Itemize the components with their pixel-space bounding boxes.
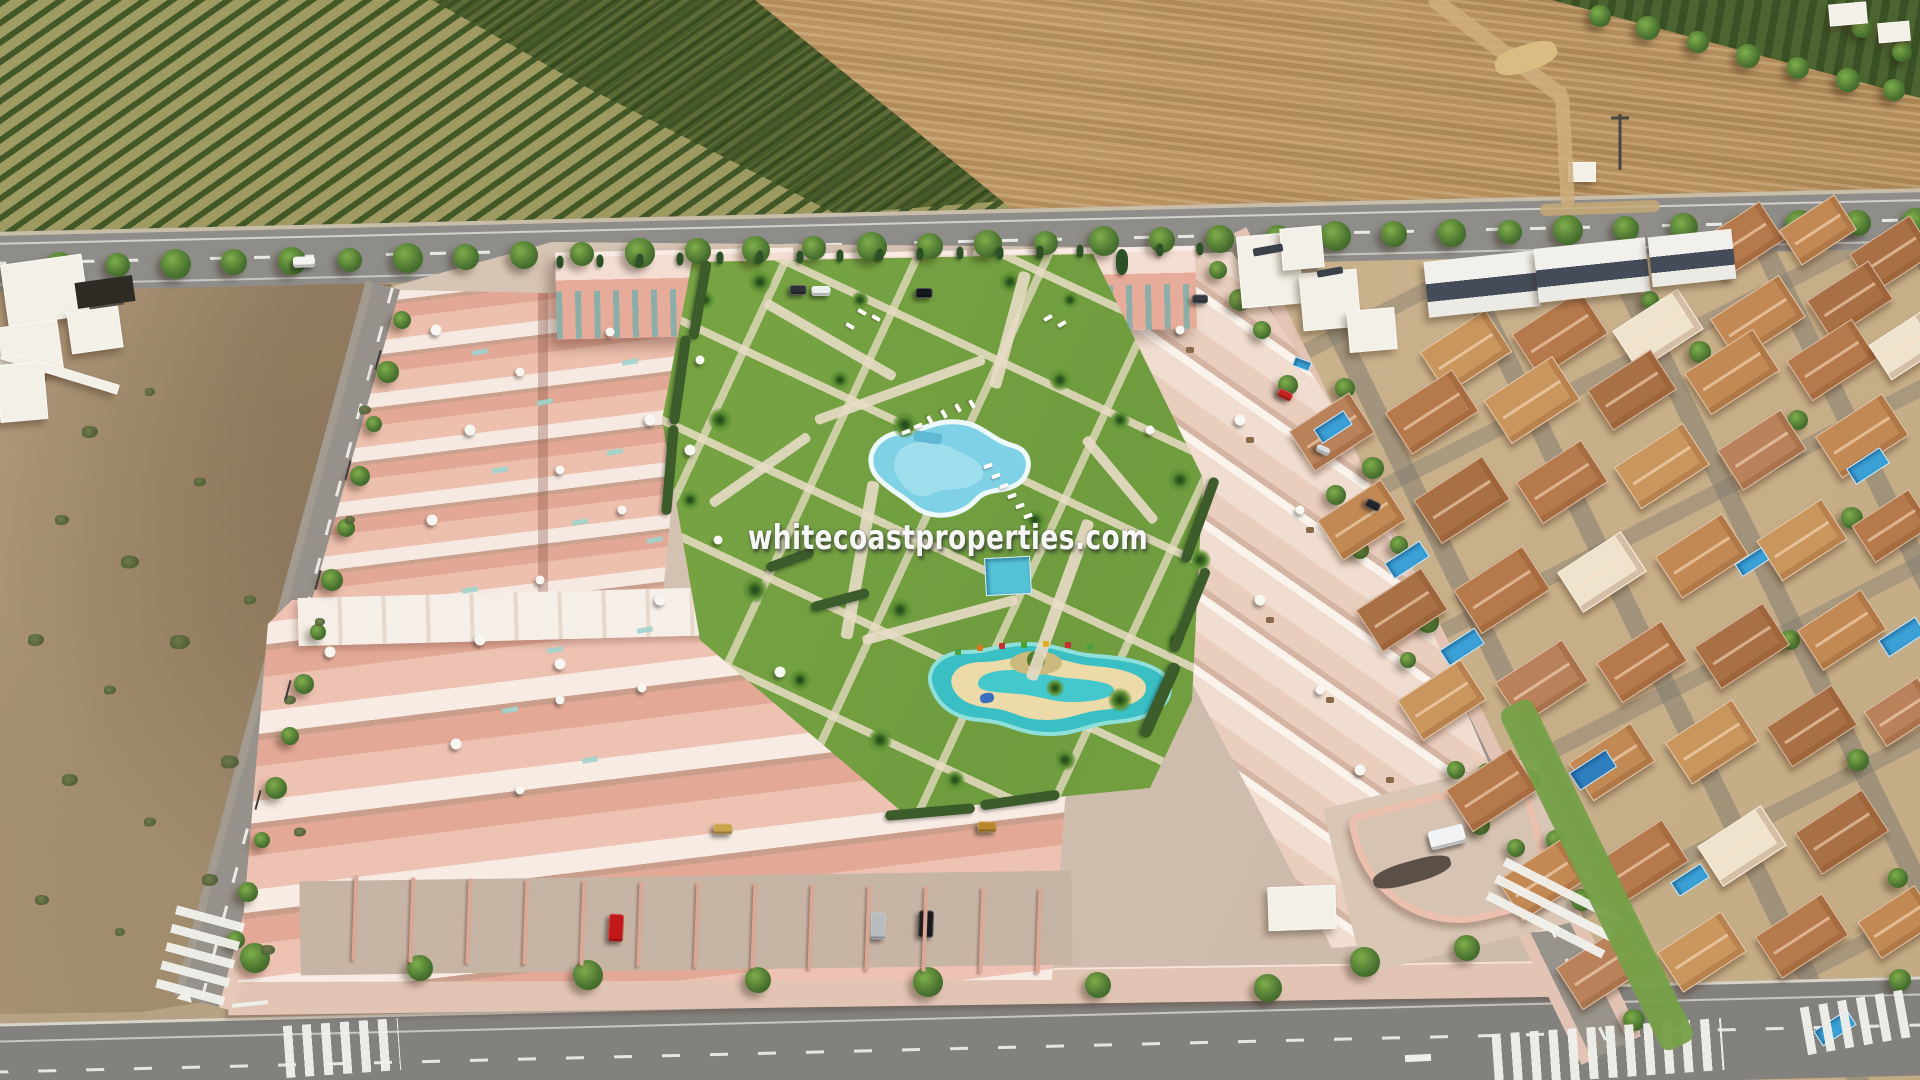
palm-tree xyxy=(1168,468,1192,492)
cypress-hedge xyxy=(837,250,844,263)
parasol xyxy=(325,647,336,658)
driveway-wall xyxy=(694,882,701,967)
parasol xyxy=(1355,765,1366,776)
south-sidewalk-tree xyxy=(573,960,603,990)
villa-roof xyxy=(1756,499,1848,582)
parasol xyxy=(685,445,696,456)
corner-tree xyxy=(1892,42,1912,62)
hedge xyxy=(1169,566,1212,653)
hedge xyxy=(669,335,691,426)
driveway-wall xyxy=(523,879,530,964)
palm-tree xyxy=(830,370,850,390)
west-street-tree xyxy=(366,416,382,432)
west-street-tree xyxy=(265,777,287,799)
east-street-tree xyxy=(1400,652,1416,668)
scrub-bush xyxy=(145,388,155,396)
roof-terrace-accent xyxy=(572,518,589,526)
sun-lounger xyxy=(968,399,976,409)
terrace-furniture xyxy=(1186,347,1194,353)
street-tree xyxy=(510,241,538,269)
street-tree xyxy=(161,249,191,279)
parasol xyxy=(1146,426,1155,435)
palm-tree xyxy=(1049,369,1071,391)
cypress-hedge xyxy=(1157,244,1164,257)
east-street-tree xyxy=(1447,761,1465,779)
driveway-wall xyxy=(979,887,986,972)
roof-terrace-accent xyxy=(647,536,664,544)
private-pool xyxy=(1292,356,1312,372)
villa-roof xyxy=(1397,659,1487,741)
playground-fence xyxy=(955,649,961,655)
driveway-wall xyxy=(466,878,473,963)
east-street-tree xyxy=(1209,261,1227,279)
scrub-bush xyxy=(359,406,371,415)
villa-roof xyxy=(1665,699,1759,785)
street-tree xyxy=(453,244,479,270)
street-tree xyxy=(1438,219,1466,247)
palm-tree xyxy=(851,291,869,309)
street-tree xyxy=(1321,221,1351,251)
sun-lounger xyxy=(857,308,867,316)
driveway-wall xyxy=(352,875,359,960)
parasol xyxy=(1296,506,1305,515)
sun-lounger xyxy=(940,409,948,419)
parasol xyxy=(431,325,442,336)
hedge xyxy=(885,803,976,821)
driveway-wall xyxy=(637,881,644,966)
villa-roof xyxy=(1612,289,1704,372)
scrub-bush xyxy=(82,426,98,438)
sun-lounger xyxy=(954,403,962,413)
street-tree xyxy=(106,253,130,277)
lamp-post xyxy=(1619,114,1622,170)
playground-fence xyxy=(1087,644,1093,650)
white-building xyxy=(1877,21,1911,44)
palm-tree xyxy=(789,669,811,691)
cypress-hedge xyxy=(1037,246,1044,259)
villa-roof xyxy=(1694,603,1790,690)
villa-roof xyxy=(1864,677,1920,747)
corner-tree xyxy=(1636,16,1660,40)
terrace-furniture xyxy=(1326,697,1334,703)
parasol xyxy=(1235,415,1246,426)
villa-roof xyxy=(1786,319,1878,402)
villa-roof xyxy=(1483,356,1580,444)
playground-fence xyxy=(1043,641,1049,647)
villa-roof xyxy=(1852,489,1920,563)
car xyxy=(916,288,933,298)
scrub-bush xyxy=(261,945,275,955)
crosswalk xyxy=(1800,989,1917,1055)
scrub-bush xyxy=(55,515,69,525)
cypress-hedge xyxy=(797,251,804,264)
palm-tree xyxy=(888,598,912,622)
garden-path xyxy=(1081,435,1159,526)
villa-roof xyxy=(1869,312,1920,381)
play-equipment xyxy=(979,692,995,704)
playground-fence xyxy=(977,645,983,651)
street-tree xyxy=(1089,226,1119,256)
palm-tree xyxy=(680,490,700,510)
roof-terrace-accent xyxy=(582,756,599,764)
scrub-bush xyxy=(104,686,116,695)
terrace-furniture xyxy=(1306,527,1314,533)
parasol xyxy=(427,515,438,526)
playground-fence xyxy=(1065,642,1071,648)
parasol xyxy=(775,667,786,678)
palm-tree xyxy=(868,728,892,752)
scrub-bush xyxy=(244,596,256,605)
street-tree xyxy=(1206,225,1234,253)
garden-path xyxy=(708,431,812,508)
parasol xyxy=(714,536,723,545)
cypress-hedge xyxy=(1116,249,1128,275)
row-townhouse xyxy=(1533,237,1650,302)
parasol xyxy=(555,659,566,670)
playground-fence xyxy=(999,643,1005,649)
villa-roof xyxy=(1587,349,1677,431)
south-sidewalk-tree xyxy=(1350,947,1380,977)
sun-lounger xyxy=(983,463,993,470)
aerial-photo: whitecoastproperties.com xyxy=(0,0,1920,1080)
sun-lounger xyxy=(926,415,934,425)
field-track xyxy=(1540,200,1660,216)
villa-roof xyxy=(1655,513,1749,599)
cypress-hedge xyxy=(677,253,684,266)
villa-roof xyxy=(1413,456,1510,544)
villa-roof xyxy=(1614,423,1710,510)
palm-tree xyxy=(748,270,772,294)
sun-lounger xyxy=(1057,320,1067,328)
parasol xyxy=(696,356,705,365)
street-tree xyxy=(393,243,423,273)
cypress-hedge xyxy=(557,256,564,269)
villa-roof xyxy=(1356,568,1449,652)
corner-tree xyxy=(1687,31,1709,53)
sun-lounger xyxy=(991,473,1001,480)
road-marking xyxy=(1405,1054,1431,1062)
garden-path xyxy=(763,298,898,382)
parasol xyxy=(618,506,627,515)
sun-lounger xyxy=(1043,314,1053,322)
palm-tree xyxy=(1108,688,1132,712)
cypress-hedge xyxy=(1077,245,1084,258)
roof-terrace-accent xyxy=(547,646,564,654)
parasol xyxy=(516,368,525,377)
car xyxy=(978,822,997,833)
roof-terrace-accent xyxy=(492,466,509,474)
row-townhouse xyxy=(1423,250,1540,317)
parasol xyxy=(638,684,647,693)
corner-tree xyxy=(1589,5,1611,27)
villa-roof xyxy=(1516,440,1609,524)
white-building xyxy=(1279,225,1325,271)
driveway-wall xyxy=(409,877,416,962)
parasol xyxy=(645,415,656,426)
palm-tree xyxy=(708,408,732,432)
palm-tree xyxy=(1046,679,1064,697)
parasol xyxy=(536,576,545,585)
cypress-hedge xyxy=(917,248,924,261)
roof-terrace-accent xyxy=(537,398,554,406)
white-building xyxy=(1828,1,1868,26)
villa-roof xyxy=(1596,621,1688,704)
private-pool xyxy=(984,556,1032,596)
scrub-bush xyxy=(144,818,156,827)
roof-terrace-accent xyxy=(502,706,519,714)
parasol xyxy=(516,786,525,795)
terrace-furniture xyxy=(1246,437,1254,443)
street-tree xyxy=(1498,220,1522,244)
row-townhouse xyxy=(1648,229,1737,288)
west-street-tree xyxy=(350,466,370,486)
car xyxy=(1427,823,1467,850)
cypress-hedge xyxy=(877,249,884,262)
west-street-tree xyxy=(281,727,299,745)
scrub-bush xyxy=(121,556,139,569)
villa-roof xyxy=(1795,789,1889,875)
garden-path xyxy=(840,480,880,640)
corner-tree xyxy=(1883,79,1905,101)
driveway-wall xyxy=(580,880,587,965)
terrace-furniture xyxy=(1386,777,1394,783)
parasol xyxy=(475,635,486,646)
street-tree xyxy=(570,242,594,266)
palm-tree xyxy=(1054,749,1076,771)
south-sidewalk-tree xyxy=(913,967,943,997)
parasol xyxy=(1316,686,1325,695)
neighborhood-tree xyxy=(1847,749,1869,771)
roof-terrace-accent xyxy=(462,586,479,594)
neighborhood-tree xyxy=(1888,868,1908,888)
neighborhood-tree xyxy=(1362,457,1384,479)
villa-roof xyxy=(1557,531,1647,613)
field-track xyxy=(1555,92,1575,208)
roof-terrace-accent xyxy=(472,348,489,356)
corner-tree xyxy=(1736,44,1760,68)
south-sidewalk-tree xyxy=(1085,972,1111,998)
neighborhood-tree xyxy=(1889,969,1911,991)
south-sidewalk-tree xyxy=(1454,935,1480,961)
east-street-tree xyxy=(1326,485,1346,505)
hedge xyxy=(810,587,871,612)
car xyxy=(293,256,315,268)
lamp-post xyxy=(1611,117,1629,120)
garden-path xyxy=(861,594,1018,645)
white-building xyxy=(66,306,123,355)
west-street-tree xyxy=(393,311,411,329)
street-tree xyxy=(338,248,362,272)
roof-terrace-accent xyxy=(637,626,654,634)
west-street-tree xyxy=(294,674,314,694)
sun-lounger xyxy=(1015,503,1025,510)
parasol xyxy=(451,739,462,750)
crosswalk xyxy=(283,1018,401,1078)
private-pool xyxy=(1878,617,1920,658)
driveway-wall xyxy=(751,883,758,968)
car xyxy=(1192,295,1208,304)
driveway-wall xyxy=(808,884,815,969)
sun-lounger xyxy=(999,483,1009,490)
neighborhood-tree xyxy=(1507,839,1525,857)
villa-roof xyxy=(1453,546,1550,634)
cypress-hedge xyxy=(997,247,1004,260)
parasol xyxy=(465,425,476,436)
car xyxy=(790,285,807,295)
parasol xyxy=(606,328,615,337)
west-street-tree xyxy=(310,624,326,640)
white-building xyxy=(1267,885,1336,931)
white-building xyxy=(0,361,48,423)
west-street-tree xyxy=(238,882,258,902)
scrub-bush xyxy=(202,874,218,886)
scrub-bush xyxy=(315,618,325,626)
palm-tree xyxy=(742,577,768,603)
parasol xyxy=(1176,326,1185,335)
car xyxy=(812,286,831,296)
scrub-bush xyxy=(294,828,306,837)
villa-roof xyxy=(1779,194,1857,265)
play-equipment xyxy=(1371,850,1454,893)
palm-tree xyxy=(1110,410,1130,430)
corner-tree xyxy=(1836,68,1860,92)
white-building xyxy=(1346,307,1397,353)
south-sidewalk-tree xyxy=(1254,974,1282,1002)
sun-lounger xyxy=(845,322,855,330)
hedge xyxy=(661,425,679,516)
playground-fence xyxy=(1021,642,1027,648)
villa-roof xyxy=(1697,805,1787,887)
hedge xyxy=(980,789,1061,810)
villa-roof xyxy=(1766,685,1858,768)
hedge xyxy=(1138,661,1182,739)
car xyxy=(714,824,733,835)
parasol xyxy=(556,466,565,475)
west-street-tree xyxy=(254,832,270,848)
car xyxy=(870,912,886,940)
parasol xyxy=(1255,595,1266,606)
parasol xyxy=(655,595,666,606)
scrub-bush xyxy=(194,478,206,487)
scrub-bush xyxy=(221,756,239,769)
street-tree xyxy=(1553,215,1583,245)
street-tree xyxy=(221,249,247,275)
scrub-bush xyxy=(35,895,49,905)
parasol xyxy=(556,696,565,705)
cypress-hedge xyxy=(1197,243,1204,256)
south-sidewalk-tree xyxy=(745,967,771,993)
villa-roof xyxy=(1797,589,1887,671)
crosswalk xyxy=(155,905,245,1006)
street-tree xyxy=(802,236,826,260)
corner-tree xyxy=(1787,57,1809,79)
west-street-tree xyxy=(321,569,343,591)
terrace-furniture xyxy=(1266,617,1274,623)
cypress-hedge xyxy=(957,247,964,260)
cypress-hedge xyxy=(717,252,724,265)
driveway-wall xyxy=(1036,888,1043,973)
watermark: whitecoastproperties.com xyxy=(748,518,1148,558)
street-tree xyxy=(1381,221,1407,247)
palm-tree xyxy=(945,770,965,790)
sun-lounger xyxy=(1007,493,1017,500)
east-street-tree xyxy=(1253,321,1271,339)
cypress-hedge xyxy=(637,254,644,267)
palm-tree xyxy=(1061,291,1079,309)
villa-roof xyxy=(1858,885,1920,959)
sun-lounger xyxy=(871,314,881,322)
cypress-hedge xyxy=(597,255,604,268)
villa-roof xyxy=(1755,893,1849,979)
west-street-tree xyxy=(377,361,399,383)
car xyxy=(608,914,624,943)
roof-terrace-accent xyxy=(622,358,639,366)
cypress-hedge xyxy=(757,251,764,264)
road-marking xyxy=(232,1000,268,1008)
scrub-bush xyxy=(115,928,125,936)
scrub-bush xyxy=(170,635,190,649)
roof-terrace-accent xyxy=(607,448,624,456)
villa-roof xyxy=(1657,911,1747,993)
lamp-post xyxy=(254,790,261,810)
scrub-bush xyxy=(62,774,78,786)
scrub-bush xyxy=(28,634,44,646)
